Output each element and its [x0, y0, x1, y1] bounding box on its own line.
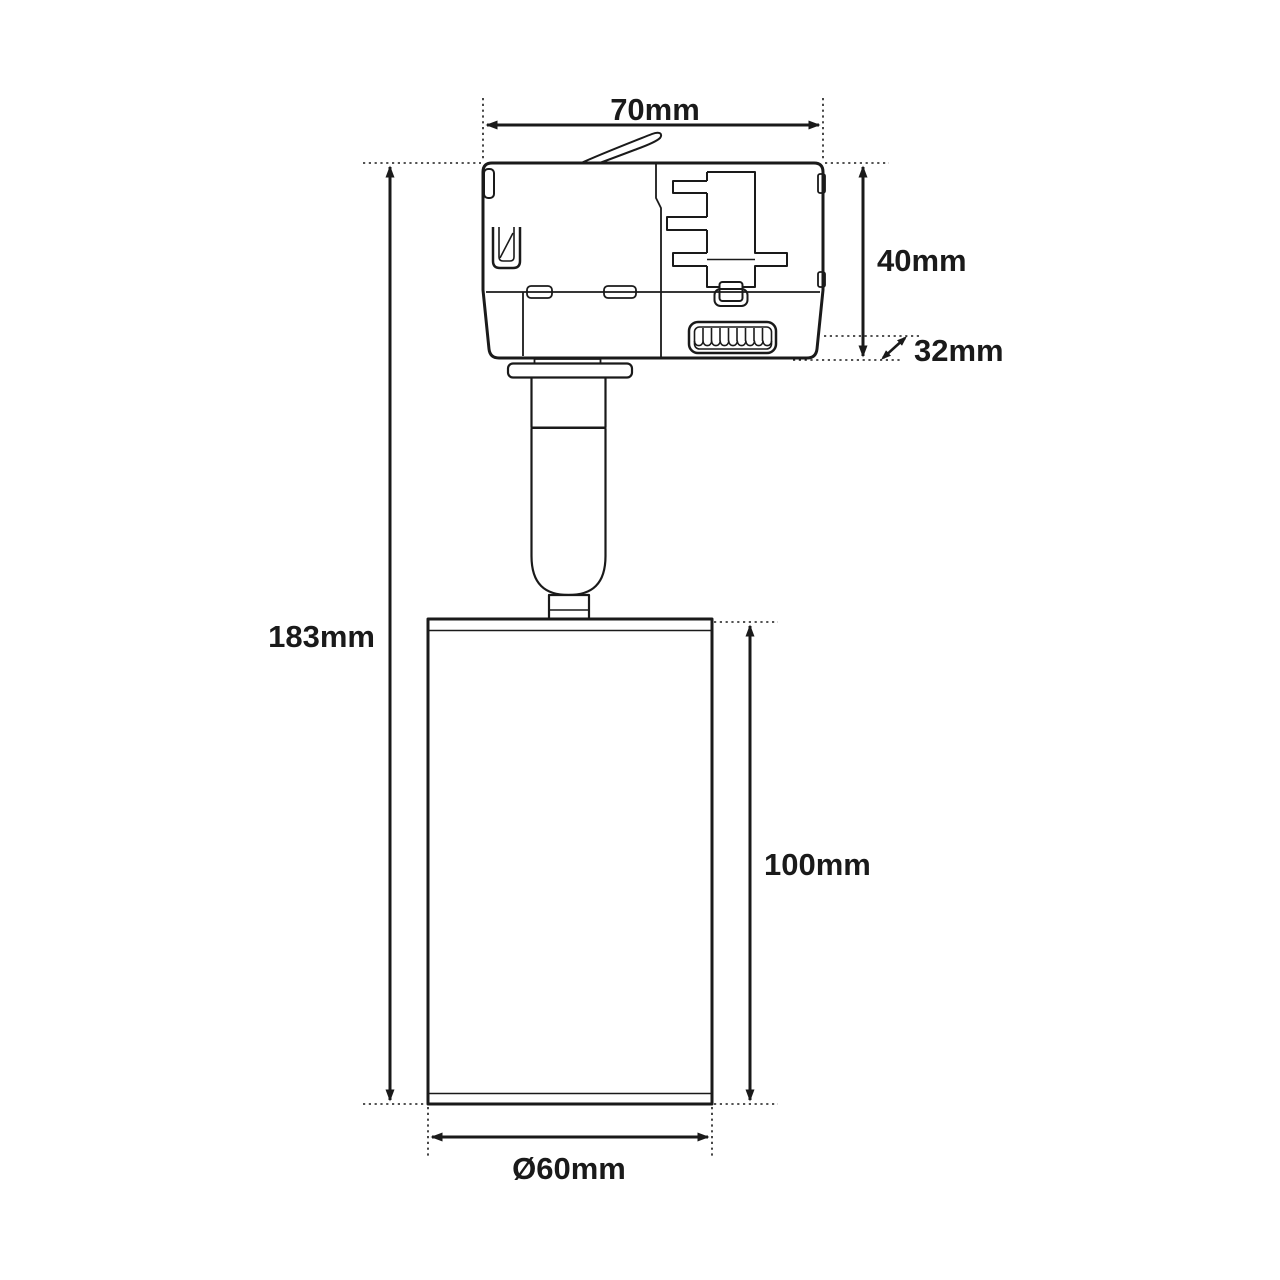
adapter-width-label: 70mm [610, 92, 700, 127]
lamp-cylinder [428, 619, 712, 1104]
stem-upper-tube [532, 378, 606, 428]
dimension-adapter-height: 40mm [863, 167, 967, 356]
adapter-flange [508, 364, 632, 378]
mounting-stem [508, 359, 632, 621]
drawing-canvas: 70mm 40mm 32mm 183mm 100mm Ø60mm [0, 0, 1280, 1280]
ribbed-connector [689, 322, 776, 353]
dimension-lamp-diameter: Ø60mm [432, 1137, 708, 1186]
lamp-height-label: 100mm [764, 847, 871, 882]
stem-lower-tube [532, 429, 606, 595]
dimension-adapter-depth: 32mm [883, 333, 1004, 368]
wiring-clamp [493, 227, 520, 268]
dimension-overall-height: 183mm [268, 167, 390, 1100]
track-adapter [483, 133, 825, 358]
technical-drawing: 70mm 40mm 32mm 183mm 100mm Ø60mm [0, 0, 1280, 1280]
wiring-clamp-outer [493, 227, 520, 268]
lamp-body [428, 619, 712, 1104]
adapter-depth-label: 32mm [914, 333, 1004, 368]
dimension-adapter-width: 70mm [487, 92, 819, 127]
overall-height-label: 183mm [268, 619, 375, 654]
lamp-diameter-label: Ø60mm [512, 1151, 626, 1186]
stem-neck [549, 595, 589, 621]
dimension-lamp-height: 100mm [750, 626, 871, 1100]
dimension-line-32mm [883, 338, 905, 358]
adapter-height-label: 40mm [877, 243, 967, 278]
